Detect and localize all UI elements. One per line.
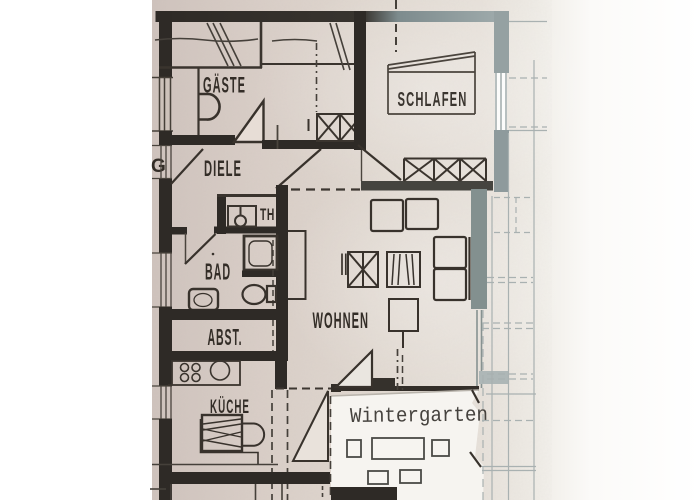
svg-text:ABST.: ABST. bbox=[208, 324, 243, 350]
svg-text:SCHLAFEN: SCHLAFEN bbox=[398, 89, 468, 111]
svg-text:BAD: BAD bbox=[205, 259, 231, 285]
svg-text:Wintergarten: Wintergarten bbox=[350, 405, 488, 429]
svg-text:WOHNEN: WOHNEN bbox=[313, 308, 370, 333]
svg-text:DIELE: DIELE bbox=[204, 156, 242, 181]
svg-text:G: G bbox=[151, 156, 166, 177]
svg-text:TH: TH bbox=[260, 206, 275, 224]
